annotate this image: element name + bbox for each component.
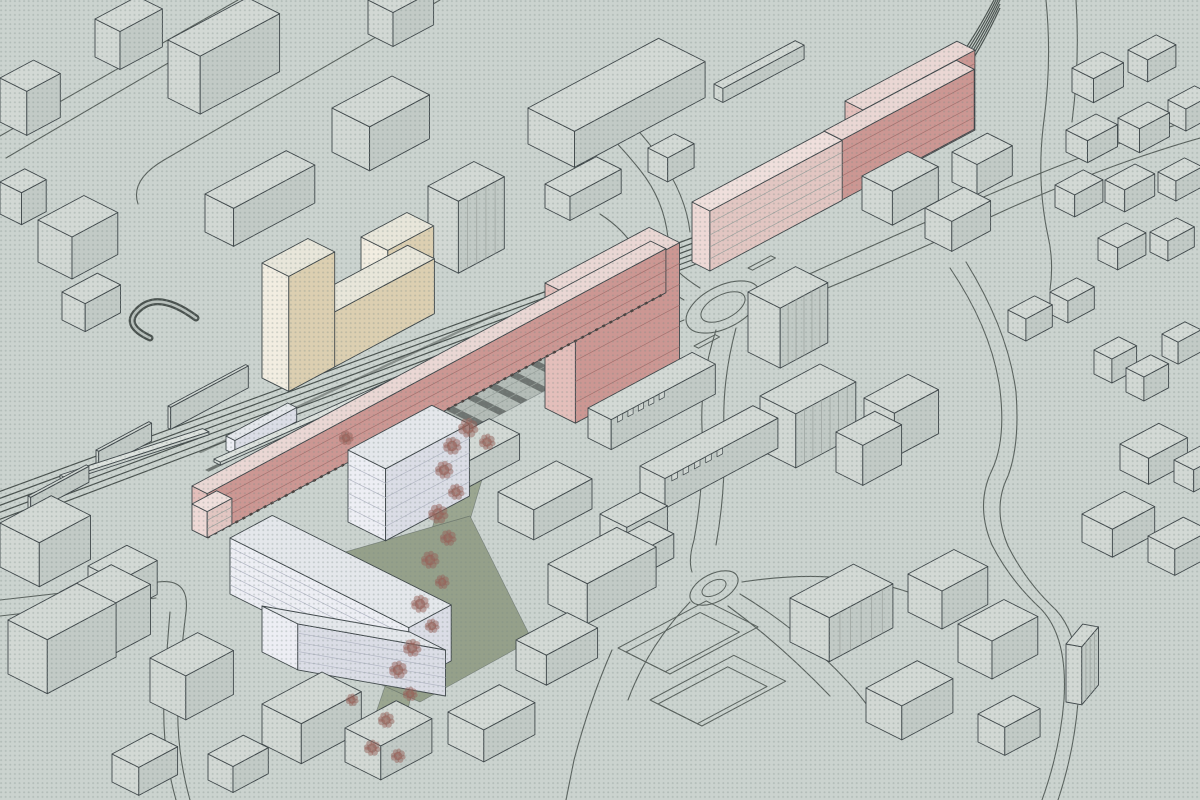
tree-foliage	[349, 702, 353, 706]
tree-foliage	[442, 461, 448, 467]
tree-foliage	[384, 712, 389, 717]
tree-foliage	[444, 541, 449, 546]
tree-foliage	[452, 495, 457, 500]
tree-foliage	[456, 445, 462, 451]
tree-foliage	[389, 719, 394, 724]
tree-foliage	[431, 619, 435, 623]
face-end	[1066, 644, 1082, 705]
tree-foliage	[424, 603, 430, 609]
tree-foliage	[403, 691, 408, 696]
face-end	[262, 263, 289, 391]
tree-foliage	[382, 723, 387, 728]
tree-foliage	[403, 644, 409, 650]
tree-foliage	[440, 534, 445, 539]
tree-foliage	[401, 755, 406, 760]
tree-foliage	[354, 699, 358, 703]
tree-foliage	[429, 629, 433, 633]
tree-foliage	[448, 488, 453, 493]
tree-foliage	[411, 600, 417, 606]
tree-foliage	[410, 639, 416, 645]
tree-foliage	[351, 693, 355, 697]
tree-foliage	[448, 449, 454, 455]
tree-foliage	[413, 693, 418, 698]
tree-foliage	[439, 585, 443, 589]
tree-foliage	[435, 625, 440, 630]
tree-foliage	[441, 575, 445, 579]
tree-foliage	[433, 518, 439, 524]
tree-foliage	[459, 491, 464, 496]
tree-foliage	[451, 537, 456, 542]
tree-foliage	[409, 687, 413, 691]
tree-foliage	[364, 744, 369, 749]
tree-foliage	[395, 759, 399, 763]
tree-foliage	[426, 563, 432, 569]
tree-foliage	[448, 469, 454, 475]
tree-foliage	[490, 441, 495, 446]
tree-foliage	[454, 484, 459, 489]
tree-foliage	[446, 530, 451, 535]
tree-foliage	[416, 647, 422, 653]
tree-foliage	[402, 669, 408, 675]
tree-foliage	[443, 442, 449, 448]
tree-foliage	[421, 556, 427, 562]
tree-foliage	[440, 473, 446, 479]
beige-u-building-tower-left	[262, 239, 335, 392]
tree-foliage	[434, 559, 440, 565]
tree-foliage	[485, 434, 490, 439]
tree-foliage	[408, 651, 414, 657]
tree-foliage	[370, 740, 375, 745]
tree-foliage	[378, 716, 383, 721]
tree-foliage	[397, 749, 401, 753]
face-end	[692, 202, 710, 271]
tree-foliage	[343, 441, 347, 445]
tree-foliage	[394, 673, 400, 679]
tree-foliage	[416, 607, 422, 613]
tree-foliage	[479, 438, 484, 443]
tree-foliage	[442, 512, 449, 519]
tree-foliage	[428, 551, 434, 557]
tree-foliage	[375, 747, 380, 752]
tree-foliage	[339, 435, 344, 440]
tree-foliage	[435, 579, 440, 584]
tree-foliage	[450, 437, 456, 443]
site-drawing-canvas	[0, 0, 1200, 800]
tree-foliage	[391, 753, 396, 758]
tree-foliage	[466, 418, 472, 424]
tree-foliage	[368, 751, 373, 756]
tree-foliage	[435, 466, 441, 472]
tree-foliage	[472, 426, 479, 433]
tree-foliage	[458, 424, 465, 431]
tree-foliage	[396, 661, 402, 667]
tree-foliage	[445, 581, 450, 586]
masterplan-axonometric-illustration	[0, 0, 1200, 800]
tree-foliage	[436, 504, 442, 510]
tree-foliage	[407, 697, 411, 701]
tree-foliage	[389, 666, 395, 672]
tree-foliage	[483, 445, 488, 450]
tree-foliage	[418, 595, 424, 601]
tree-foliage	[349, 437, 354, 442]
tree-foliage	[463, 432, 469, 438]
tree-foliage	[425, 623, 430, 628]
tree-foliage	[345, 431, 349, 435]
tree-foliage	[428, 510, 435, 517]
tree-foliage	[346, 697, 350, 701]
